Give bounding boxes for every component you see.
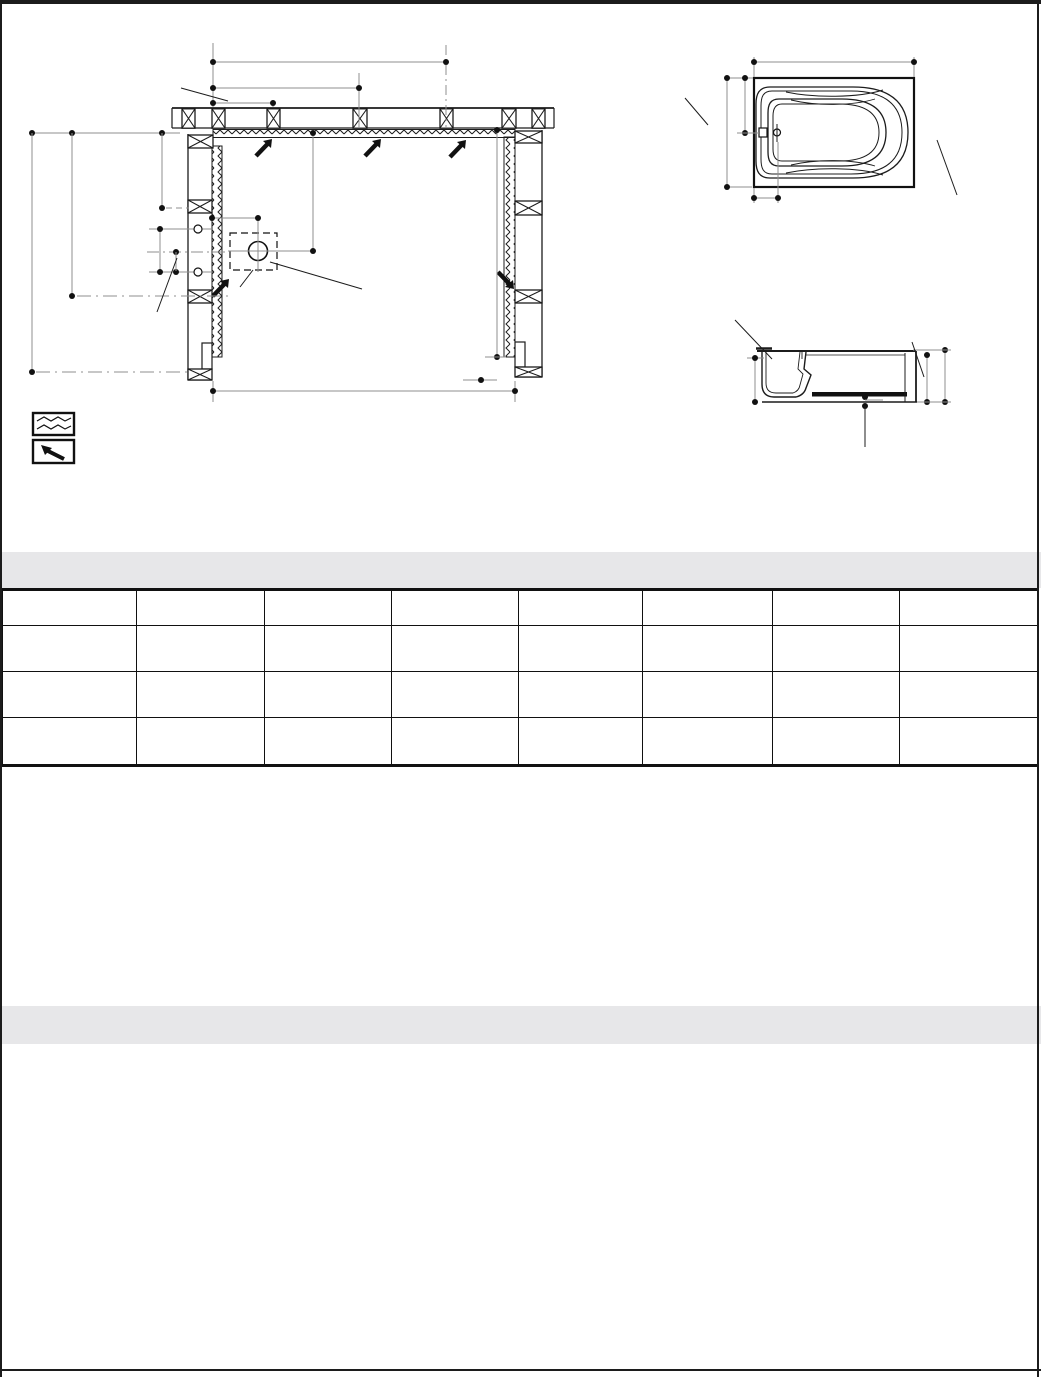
stud-box [502, 109, 516, 128]
table-cell [392, 626, 519, 672]
stud-box [182, 109, 195, 128]
table-cell [773, 718, 900, 766]
table-cell [643, 718, 773, 766]
framing-diagram [29, 43, 554, 402]
table-cell [265, 672, 392, 718]
table-cell [900, 672, 1038, 718]
footer-rule [0, 1369, 1041, 1371]
table-cell [137, 672, 265, 718]
table-cell [137, 718, 265, 766]
notes-title-band [0, 1006, 1041, 1044]
legend-membrane-swatch [33, 413, 74, 435]
legend-arrow-swatch [33, 440, 74, 463]
legend [33, 413, 74, 463]
table-cell [643, 626, 773, 672]
table-cell [519, 718, 643, 766]
table-cell [900, 718, 1038, 766]
stud-box [515, 290, 542, 303]
column-header [519, 590, 643, 626]
spec-table [2, 588, 1038, 767]
table-cell [643, 672, 773, 718]
table-cell [519, 672, 643, 718]
technical-drawing [0, 0, 1041, 552]
membrane-top [213, 130, 515, 138]
table-cell [265, 718, 392, 766]
lower-notes-area [2, 1044, 1037, 1369]
table-cell [773, 672, 900, 718]
table-cell [137, 626, 265, 672]
stud-box [353, 109, 367, 128]
page-border-top [0, 0, 1041, 4]
dimension-lines-left [29, 130, 231, 375]
table-row [3, 626, 1038, 672]
stud-box [188, 135, 213, 148]
dimension-lines-bottom [210, 127, 518, 402]
column-header [773, 590, 900, 626]
stud-box [188, 200, 212, 213]
table-cell [3, 672, 137, 718]
column-header [137, 590, 265, 626]
table-header-row [3, 590, 1038, 626]
document-page [0, 0, 1041, 1377]
table-cell [3, 718, 137, 766]
notes-area [2, 770, 1037, 1006]
table-cell [265, 626, 392, 672]
side-view-dimensions [735, 320, 951, 447]
table-row [3, 718, 1038, 766]
table-cell [392, 672, 519, 718]
column-header [900, 590, 1038, 626]
table-row [3, 672, 1038, 718]
page-border-left [0, 0, 2, 1377]
table-cell [3, 626, 137, 672]
table-cell [519, 626, 643, 672]
table-cell [900, 626, 1038, 672]
stud-box [267, 109, 280, 128]
stud-box [212, 109, 225, 128]
stud-box [515, 201, 542, 215]
tub-base-bar [812, 392, 907, 397]
drain-rough-in [209, 130, 362, 289]
tub-plan-view [685, 57, 957, 203]
stud-box [532, 109, 545, 128]
page-border-right [1037, 0, 1040, 1377]
column-header [3, 590, 137, 626]
stud-box [515, 131, 542, 143]
membrane-right [504, 137, 515, 357]
stud-box [188, 369, 212, 380]
column-header [643, 590, 773, 626]
tub-side-view [735, 320, 951, 447]
table-cell [392, 718, 519, 766]
column-header [265, 590, 392, 626]
table-cell [773, 626, 900, 672]
stud-box [515, 367, 542, 377]
table-title-band [0, 552, 1041, 588]
column-header [392, 590, 519, 626]
